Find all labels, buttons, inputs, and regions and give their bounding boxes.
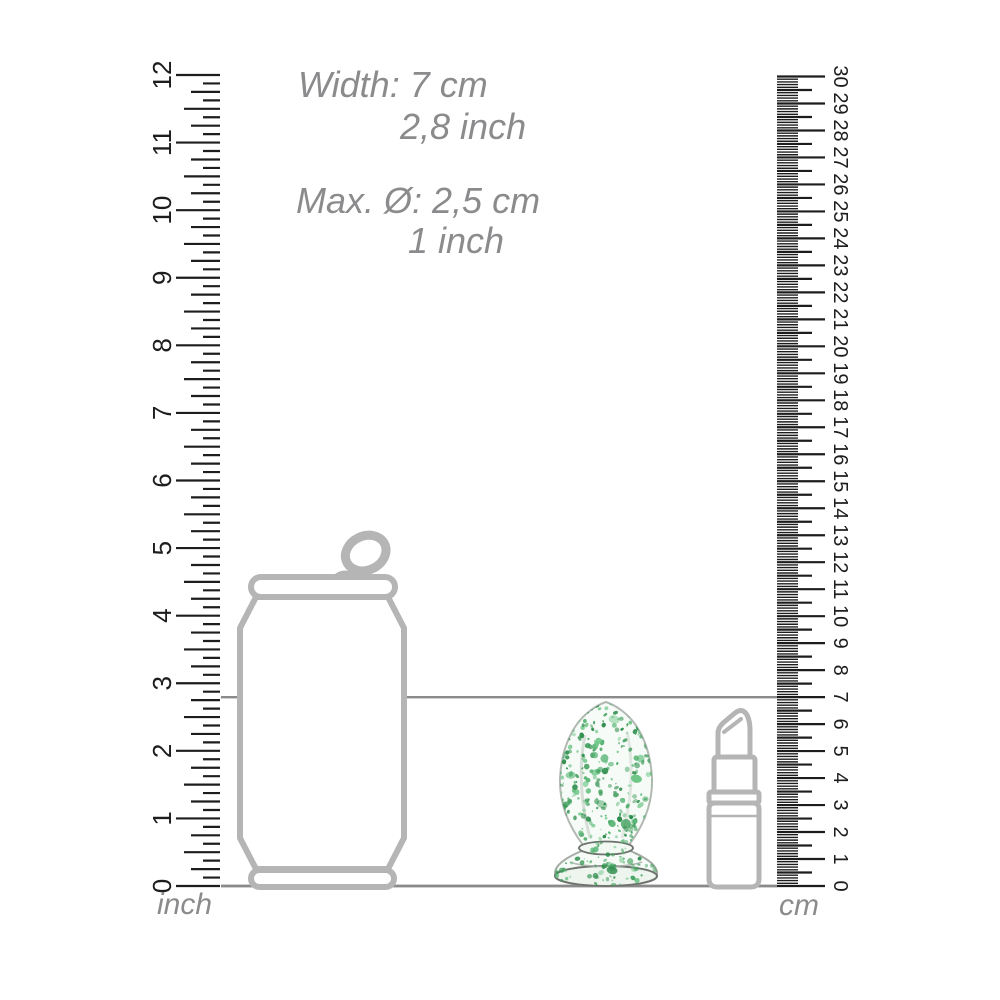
inch-unit-label: inch xyxy=(157,888,212,922)
svg-text:2: 2 xyxy=(829,826,851,837)
svg-text:14: 14 xyxy=(829,497,851,519)
lipstick xyxy=(709,711,759,887)
svg-text:23: 23 xyxy=(829,254,851,276)
svg-text:17: 17 xyxy=(829,416,851,438)
svg-text:15: 15 xyxy=(829,470,851,492)
svg-text:8: 8 xyxy=(147,338,177,352)
svg-text:21: 21 xyxy=(829,308,851,330)
svg-text:11: 11 xyxy=(829,579,851,600)
svg-text:12: 12 xyxy=(829,551,851,573)
svg-text:4: 4 xyxy=(147,608,177,622)
svg-text:20: 20 xyxy=(829,335,851,357)
svg-text:6: 6 xyxy=(147,473,177,487)
svg-text:1: 1 xyxy=(147,811,177,825)
svg-text:25: 25 xyxy=(829,200,851,222)
lipstick-holder xyxy=(714,757,755,793)
inch-ruler: 0123456789101112 xyxy=(147,61,220,894)
svg-text:2: 2 xyxy=(147,744,177,758)
can-lid xyxy=(251,577,395,597)
svg-text:3: 3 xyxy=(829,799,851,810)
svg-text:5: 5 xyxy=(829,746,851,757)
can-base xyxy=(251,870,394,887)
svg-text:30: 30 xyxy=(829,65,851,87)
glass-plug xyxy=(548,698,662,887)
can-body xyxy=(240,597,404,869)
svg-text:3: 3 xyxy=(147,676,177,690)
svg-text:28: 28 xyxy=(829,119,851,141)
svg-text:4: 4 xyxy=(829,773,851,784)
svg-text:24: 24 xyxy=(829,227,851,249)
svg-text:1: 1 xyxy=(829,853,851,864)
svg-text:9: 9 xyxy=(147,271,177,285)
svg-text:18: 18 xyxy=(829,389,851,411)
svg-text:0: 0 xyxy=(829,880,851,891)
svg-text:11: 11 xyxy=(147,129,177,156)
svg-text:19: 19 xyxy=(829,362,851,384)
soda-can xyxy=(240,529,404,887)
svg-text:16: 16 xyxy=(829,443,851,465)
svg-text:26: 26 xyxy=(829,173,851,195)
svg-text:6: 6 xyxy=(829,719,851,730)
svg-text:13: 13 xyxy=(829,524,851,546)
lipstick-bullet xyxy=(718,711,750,758)
svg-text:29: 29 xyxy=(829,92,851,114)
svg-text:12: 12 xyxy=(147,61,177,90)
svg-text:10: 10 xyxy=(829,605,851,627)
cm-unit-label: cm xyxy=(779,889,819,923)
svg-text:9: 9 xyxy=(829,638,851,649)
svg-text:8: 8 xyxy=(829,665,851,676)
cm-ruler: 0123456789101112131415161718192021222324… xyxy=(777,65,851,891)
svg-text:7: 7 xyxy=(829,692,851,703)
svg-text:5: 5 xyxy=(147,541,177,555)
svg-text:27: 27 xyxy=(829,146,851,168)
scene-canvas: 0123456789101112 01234567891011121314151… xyxy=(0,0,1000,1000)
svg-text:10: 10 xyxy=(147,196,177,225)
svg-text:22: 22 xyxy=(829,281,851,303)
svg-text:7: 7 xyxy=(147,406,177,420)
product-dimension-diagram: Width: 7 cm 2,8 inch Max. Ø: 2,5 cm 1 in… xyxy=(0,0,1000,1000)
